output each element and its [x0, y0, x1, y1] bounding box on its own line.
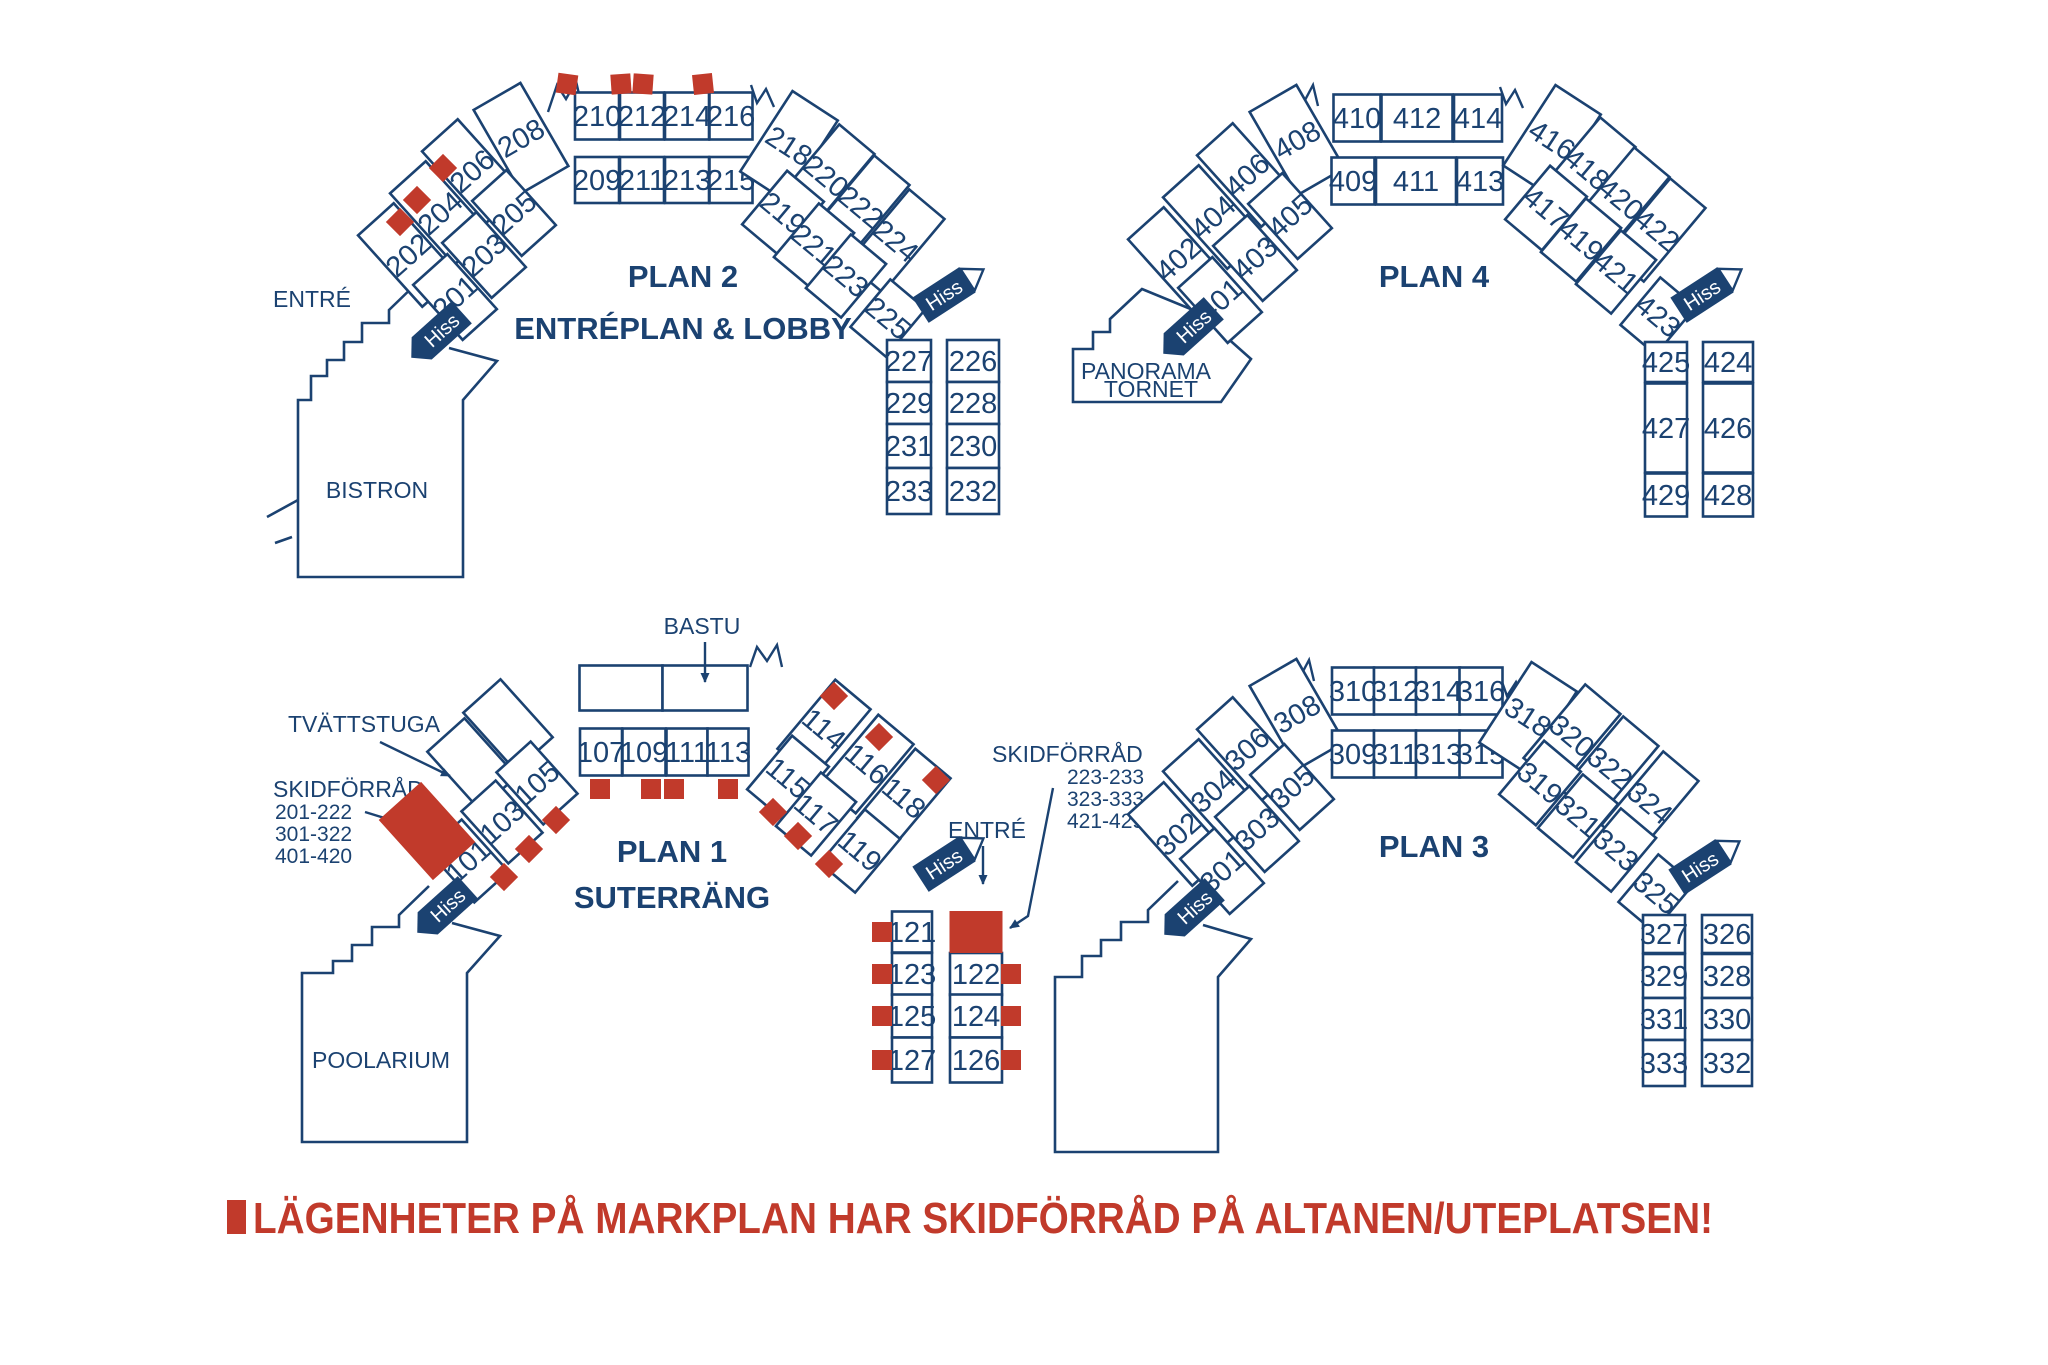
room-429-label: 429: [1642, 480, 1690, 512]
ski-storage-marker-icon: [872, 922, 892, 942]
plan4-bend-right: [1500, 87, 1523, 108]
room-121-label: 121: [888, 917, 936, 949]
room-210: 210: [573, 93, 621, 140]
room-413-label: 413: [1456, 166, 1504, 198]
room-311-label: 311: [1372, 739, 1418, 771]
room-316: 316: [1457, 668, 1505, 715]
room-409-label: 409: [1329, 166, 1377, 198]
room-214-label: 214: [663, 101, 711, 133]
room-414-label: 414: [1454, 103, 1502, 135]
room-213: 213: [663, 157, 711, 203]
hiss-flag-plan2-right: Hiss: [912, 257, 991, 323]
room-122: 122: [950, 953, 1002, 995]
ski-storage-marker-icon: [1001, 1050, 1021, 1070]
room-309: 309: [1329, 731, 1377, 778]
room-312-label: 312: [1371, 676, 1419, 708]
room-231: 231: [885, 424, 933, 468]
ski-storage-marker-icon: [718, 779, 738, 799]
room-230-label: 230: [949, 431, 997, 463]
tvattstuga-label: TVÄTTSTUGA: [288, 711, 441, 737]
room-314-label: 314: [1414, 676, 1462, 708]
red-square-icon: [872, 964, 892, 984]
red-square-icon: [641, 779, 661, 799]
room-410-label: 410: [1333, 103, 1381, 135]
skidforrad-left-range-1: 201-222: [275, 801, 352, 824]
room-332: 332: [1702, 1040, 1752, 1086]
room-332-label: 332: [1703, 1048, 1751, 1080]
ski-storage-marker-icon: [1001, 1006, 1021, 1026]
room-226-label: 226: [949, 346, 997, 378]
room-126-label: 126: [952, 1045, 1000, 1077]
bistron-door-ticks: [267, 500, 298, 543]
room-424-label: 424: [1704, 347, 1752, 379]
room-227: 227: [885, 340, 933, 382]
room-211-label: 211: [619, 165, 665, 197]
room-333-label: 333: [1640, 1048, 1688, 1080]
room-109: 109: [620, 729, 668, 776]
ski-storage-room: [950, 912, 1002, 953]
red-square-icon: [610, 73, 631, 94]
room-111: 111: [665, 729, 709, 776]
room-unlabeled: [580, 666, 663, 711]
room-329: 329: [1640, 954, 1688, 998]
plan2-group: 2022042062082012032052102122142162092112…: [267, 81, 999, 577]
room-314: 314: [1414, 668, 1462, 715]
skidforrad-left-range-2: 301-322: [275, 823, 352, 846]
floor-plan-svg: 2022042062082012032052102122142162092112…: [0, 0, 2048, 1365]
room-326: 326: [1702, 915, 1752, 953]
room-328: 328: [1702, 954, 1752, 998]
room-209-label: 209: [573, 165, 621, 197]
plan1-subtitle: SUTERRÄNG: [574, 880, 770, 915]
skidforrad-left-range-3: 401-420: [275, 845, 352, 868]
room-409: 409: [1329, 158, 1377, 205]
room-111-label: 111: [665, 737, 709, 769]
room-216-label: 216: [707, 101, 755, 133]
plan1-poolarium-outline: [302, 886, 500, 1142]
hiss-flag-plan3-right: Hiss: [1668, 829, 1747, 895]
room-428-label: 428: [1704, 480, 1752, 512]
poolarium-label: POOLARIUM: [312, 1047, 450, 1073]
floor-plan-diagram: 2022042062082012032052102122142162092112…: [0, 0, 2048, 1365]
room-230: 230: [947, 424, 999, 468]
room-328-label: 328: [1703, 961, 1751, 993]
room-121: 121: [888, 912, 936, 953]
room-232-label: 232: [949, 476, 997, 508]
room-413: 413: [1456, 158, 1504, 205]
legend-text: LÄGENHETER PÅ MARKPLAN HAR SKIDFÖRRÅD PÅ…: [253, 1194, 1713, 1243]
room-box: [580, 666, 663, 711]
hiss-flag-plan4-right: Hiss: [1670, 257, 1749, 323]
legend-red-square-icon: [227, 1200, 246, 1234]
ski-storage-marker-icon: [590, 779, 610, 799]
skidforrad-right-arrow: [1010, 788, 1053, 928]
red-square-icon: [872, 1050, 892, 1070]
room-313-label: 313: [1414, 739, 1462, 771]
ski-storage-marker-icon: [632, 73, 653, 94]
plan1-title: PLAN 1: [617, 834, 727, 869]
room-214: 214: [663, 93, 711, 140]
skidforrad-right-title: SKIDFÖRRÅD: [992, 740, 1143, 767]
room-426: 426: [1703, 384, 1753, 473]
red-square-icon: [556, 73, 579, 96]
room-126: 126: [950, 1038, 1002, 1083]
red-square-icon: [1001, 1006, 1021, 1026]
plan1-bend-right: [750, 645, 782, 667]
room-209: 209: [573, 157, 621, 203]
room-213-label: 213: [663, 165, 711, 197]
ski-storage-marker-icon: [1001, 964, 1021, 984]
room-411-label: 411: [1393, 166, 1439, 198]
plan2-title: PLAN 2: [628, 259, 738, 294]
entre-label-plan2: ENTRÉ: [273, 286, 351, 312]
red-square-icon: [872, 1006, 892, 1026]
room-426-label: 426: [1704, 413, 1752, 445]
ski-storage-marker-icon: [692, 73, 714, 95]
room-329-label: 329: [1640, 961, 1688, 993]
room-113: 113: [705, 729, 751, 776]
room-330-label: 330: [1703, 1004, 1751, 1036]
room-109-label: 109: [620, 737, 668, 769]
room-327-label: 327: [1640, 919, 1688, 951]
plan3-title: PLAN 3: [1379, 829, 1489, 864]
ski-storage-room-box: [950, 912, 1002, 953]
room-227-label: 227: [885, 346, 933, 378]
room-311: 311: [1372, 731, 1418, 778]
room-212-label: 212: [618, 101, 666, 133]
plan3-annex-outline: [1055, 881, 1251, 1152]
room-123-label: 123: [888, 959, 936, 991]
room-233: 233: [885, 468, 933, 514]
room-414: 414: [1454, 95, 1502, 142]
room-212: 212: [618, 93, 666, 140]
room-123: 123: [888, 953, 936, 995]
skidforrad-left-title: SKIDFÖRRÅD: [273, 775, 424, 802]
room-211: 211: [619, 157, 665, 203]
ski-storage-marker-icon: [641, 779, 661, 799]
room-125-label: 125: [888, 1001, 936, 1033]
room-424: 424: [1703, 342, 1753, 382]
red-square-icon: [1001, 1050, 1021, 1070]
panorama-label-line2: TORNET: [1104, 376, 1198, 402]
room-233-label: 233: [885, 476, 933, 508]
room-330: 330: [1702, 998, 1752, 1040]
room-410: 410: [1333, 95, 1381, 142]
ski-storage-marker-icon: [664, 779, 684, 799]
room-312: 312: [1371, 668, 1419, 715]
room-125: 125: [888, 995, 936, 1038]
plan4-title: PLAN 4: [1379, 259, 1490, 294]
plan4-group: 4024044064084014034054104124144094114134…: [1073, 85, 1753, 517]
legend: LÄGENHETER PÅ MARKPLAN HAR SKIDFÖRRÅD PÅ…: [227, 1194, 1713, 1243]
plan2-subtitle: ENTRÉPLAN & LOBBY: [514, 311, 852, 346]
ski-storage-marker-icon: [556, 73, 579, 96]
room-428: 428: [1703, 474, 1753, 517]
room-412-label: 412: [1393, 103, 1441, 135]
ski-storage-marker-icon: [872, 1050, 892, 1070]
skidforrad-right-range-2: 323-333: [1067, 788, 1144, 811]
room-210-label: 210: [573, 101, 621, 133]
skidforrad-right-range-1: 223-233: [1067, 766, 1144, 789]
room-226: 226: [947, 340, 999, 382]
room-127: 127: [888, 1038, 936, 1083]
red-square-icon: [872, 922, 892, 942]
red-square-icon: [590, 779, 610, 799]
ski-storage-marker-icon: [610, 73, 631, 94]
red-square-icon: [632, 73, 653, 94]
room-231-label: 231: [885, 431, 933, 463]
red-square-icon: [664, 779, 684, 799]
room-411: 411: [1376, 158, 1456, 205]
room-425: 425: [1642, 342, 1690, 382]
room-216: 216: [707, 93, 755, 140]
red-square-icon: [692, 73, 714, 95]
room-127-label: 127: [888, 1045, 936, 1077]
room-331: 331: [1640, 998, 1688, 1040]
room-228: 228: [947, 382, 999, 424]
room-316-label: 316: [1457, 676, 1505, 708]
room-309-label: 309: [1329, 739, 1377, 771]
room-232: 232: [947, 468, 999, 514]
room-124-label: 124: [952, 1001, 1000, 1033]
room-228-label: 228: [949, 388, 997, 420]
room-331-label: 331: [1640, 1004, 1688, 1036]
room-107: 107: [577, 729, 625, 776]
room-113-label: 113: [705, 737, 751, 769]
room-427: 427: [1642, 384, 1690, 473]
room-412: 412: [1382, 95, 1453, 142]
room-333: 333: [1640, 1040, 1688, 1086]
room-122-label: 122: [952, 959, 1000, 991]
room-124: 124: [950, 995, 1002, 1038]
room-229-label: 229: [885, 388, 933, 420]
room-313: 313: [1414, 731, 1462, 778]
bastu-label: BASTU: [664, 613, 741, 639]
red-square-icon: [1001, 964, 1021, 984]
plan3-group: 3023043063083013033053103123143163093113…: [1055, 659, 1752, 1152]
room-429: 429: [1642, 474, 1690, 517]
room-327: 327: [1640, 915, 1688, 953]
room-326-label: 326: [1703, 919, 1751, 951]
red-square-icon: [718, 779, 738, 799]
bistron-label: BISTRON: [326, 477, 428, 503]
room-107-label: 107: [577, 737, 625, 769]
ski-storage-marker-icon: [872, 1006, 892, 1026]
room-229: 229: [885, 382, 933, 424]
room-425-label: 425: [1642, 347, 1690, 379]
ski-storage-marker-icon: [872, 964, 892, 984]
room-427-label: 427: [1642, 413, 1690, 445]
